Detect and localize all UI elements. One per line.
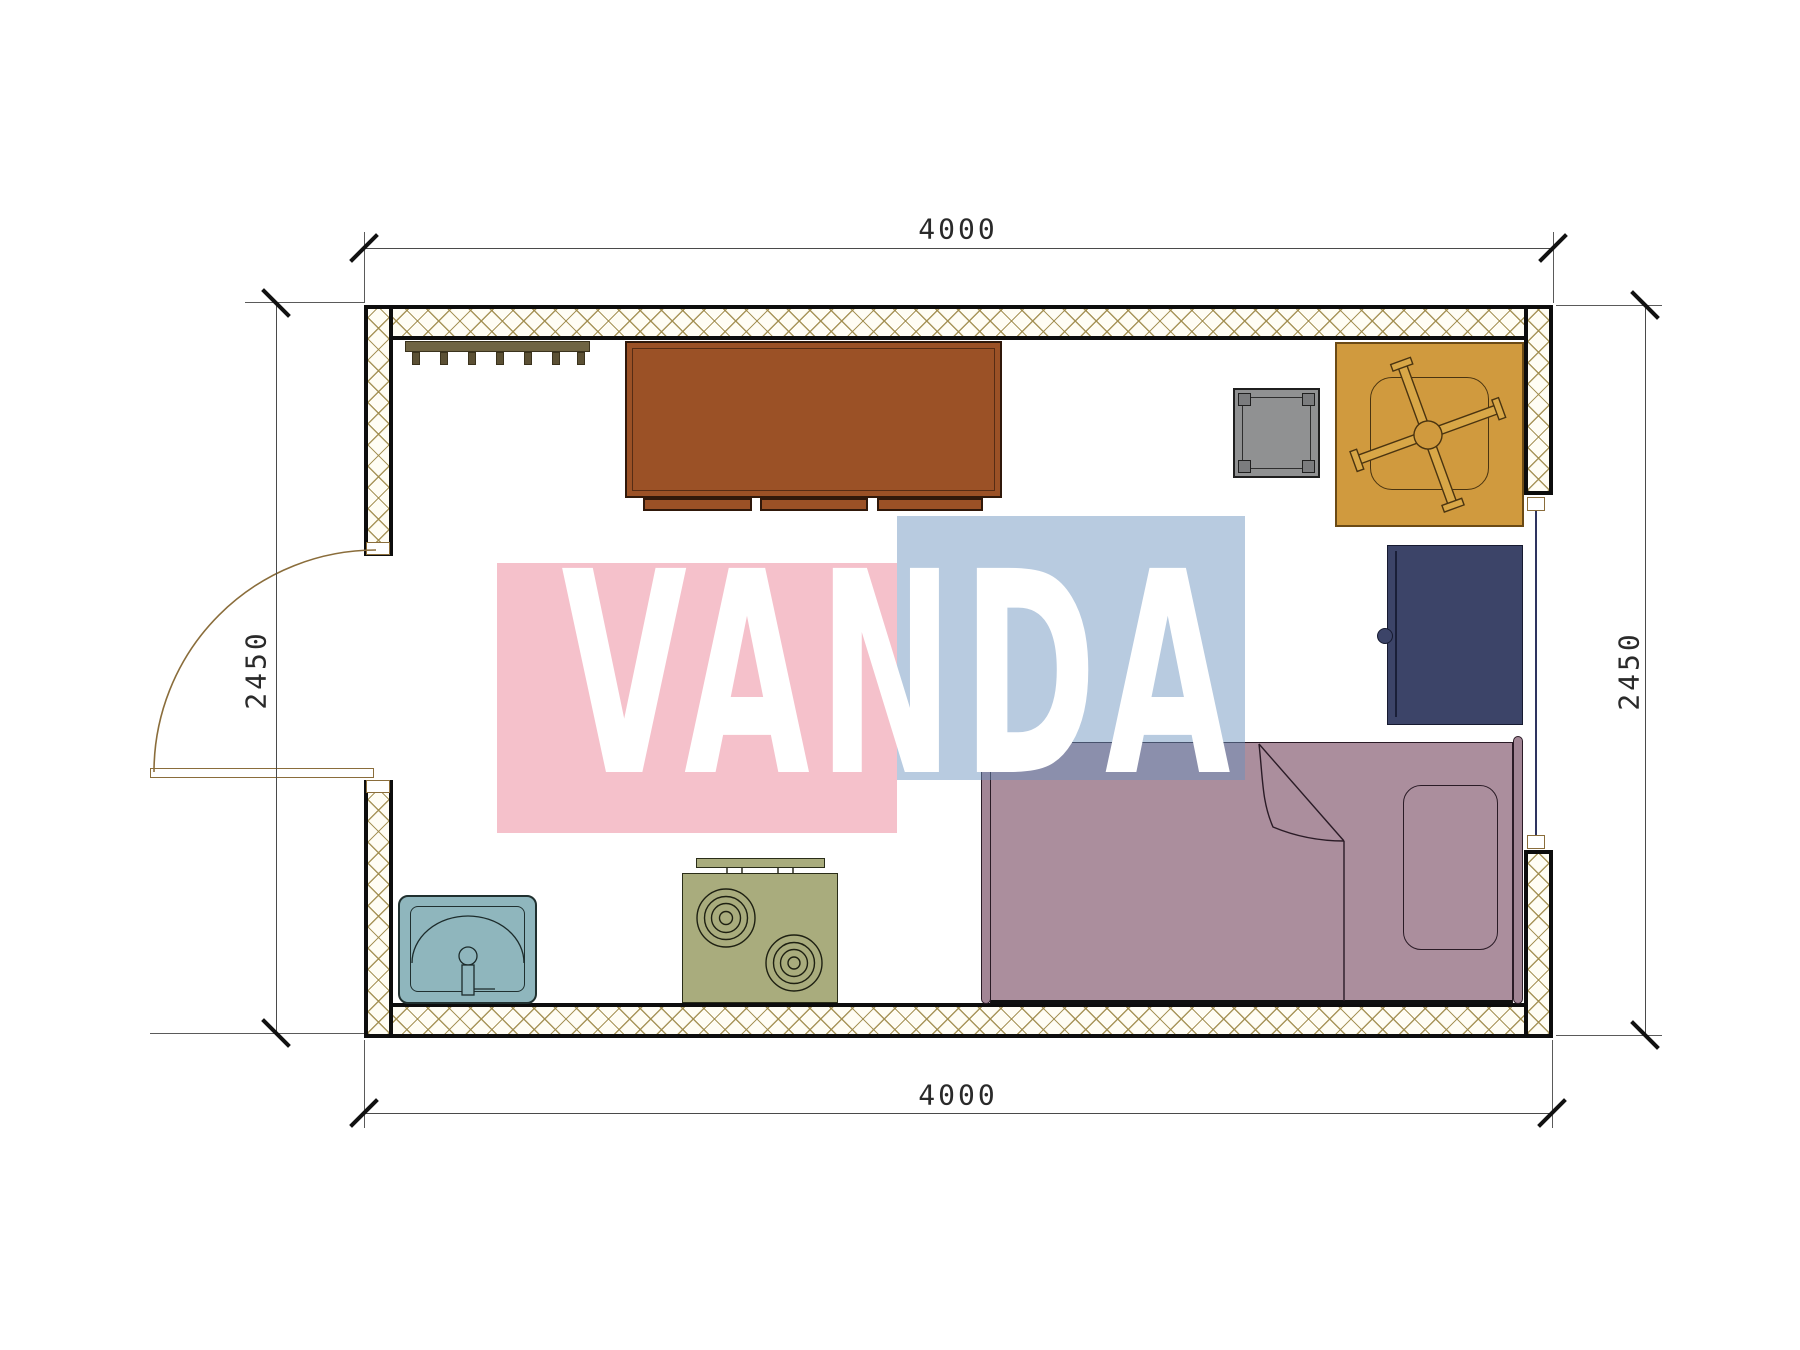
stool-leg <box>1302 460 1315 473</box>
office-chair <box>1335 342 1524 527</box>
desk-drawer <box>643 498 752 511</box>
coat-rack-hook <box>524 352 532 365</box>
wall-top <box>364 305 1553 340</box>
dim-label-right: 2450 <box>1613 631 1646 710</box>
watermark-text: VANDA <box>561 536 1238 816</box>
wardrobe-knob <box>1377 628 1393 644</box>
dim-line-left <box>276 303 277 1033</box>
coat-rack-hook <box>496 352 504 365</box>
window-jamb-top <box>1527 497 1545 511</box>
dim-line-bottom <box>364 1113 1552 1114</box>
office-chair-seat <box>1370 377 1489 490</box>
stool <box>1233 388 1320 478</box>
coat-rack-hook <box>412 352 420 365</box>
wall-right-upper <box>1524 305 1553 495</box>
sink-basin-rim <box>410 906 525 992</box>
desk-top-edge <box>632 348 995 491</box>
desk <box>625 341 1002 498</box>
bed-pillow <box>1403 785 1498 950</box>
dim-line-top <box>364 248 1553 249</box>
wardrobe-door-line <box>1395 551 1397 717</box>
wall-bottom <box>364 1003 1553 1038</box>
dim-ext-line <box>245 302 364 303</box>
coat-rack-hook <box>577 352 585 365</box>
stove <box>682 873 838 1003</box>
window-glazing-line <box>1535 511 1537 835</box>
desk-drawer <box>877 498 983 511</box>
window-jamb-bottom <box>1527 835 1545 849</box>
wardrobe <box>1387 545 1523 725</box>
stool-leg <box>1238 393 1251 406</box>
stove-back-rail <box>696 858 825 868</box>
wall-left-lower <box>364 780 393 1038</box>
coat-rack-hook <box>552 352 560 365</box>
dim-label-top: 4000 <box>918 213 997 246</box>
dim-ext-line <box>150 1033 364 1034</box>
wall-right-lower <box>1524 850 1553 1038</box>
coat-rack-hook <box>440 352 448 365</box>
stool-leg <box>1302 393 1315 406</box>
desk-drawer <box>760 498 868 511</box>
door-jamb-top <box>366 542 390 555</box>
stool-frame <box>1242 397 1311 469</box>
door-jamb-bottom <box>366 780 390 793</box>
dim-label-bottom: 4000 <box>918 1079 997 1112</box>
sink <box>398 895 537 1004</box>
wall-left-upper <box>364 305 393 556</box>
floor-plan-canvas: 4000 4000 2450 2450 VANDA <box>0 0 1800 1350</box>
dim-label-left: 2450 <box>240 630 273 709</box>
door-leaf <box>150 768 374 778</box>
coat-rack <box>405 341 590 352</box>
coat-rack-hook <box>468 352 476 365</box>
stool-leg <box>1238 460 1251 473</box>
bed-footboard-post <box>1513 736 1523 1004</box>
